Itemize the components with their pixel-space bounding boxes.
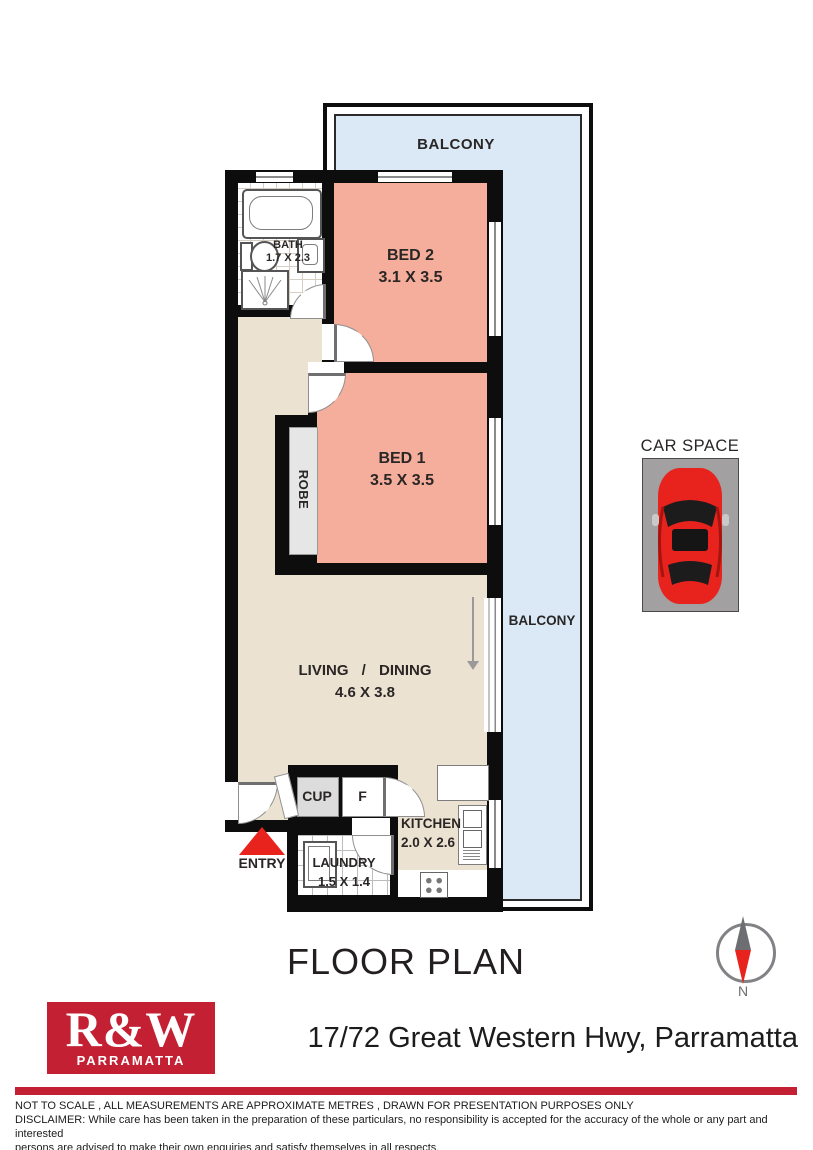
bed2-door-gap — [322, 324, 334, 360]
footer-divider-bar — [15, 1087, 797, 1095]
entry-label: ENTRY — [227, 855, 297, 871]
disclaimer-line2: persons are advised to make their own en… — [15, 1141, 805, 1150]
bed1-door-gap — [308, 362, 344, 373]
bathtub — [242, 189, 322, 239]
entry-arrow-icon — [239, 827, 285, 855]
bed2-side-window — [489, 222, 501, 336]
bed1-side-window — [489, 418, 501, 525]
kitchen-counter — [437, 765, 489, 801]
disclaimer-line1: DISCLAIMER: While care has been taken in… — [15, 1113, 805, 1141]
bath-dims: 1.7 X 2.3 — [252, 252, 324, 265]
compass-needle-south — [735, 950, 751, 984]
car-space-label: CAR SPACE — [638, 437, 742, 456]
page-title: FLOOR PLAN — [156, 941, 656, 983]
entry-door-gap — [225, 782, 238, 820]
bath-name: BATH — [252, 239, 324, 252]
living-name: LIVING / DINING — [255, 660, 475, 682]
car-space-area — [642, 458, 739, 612]
kitchen-name: KITCHEN — [401, 814, 485, 833]
bed2-name: BED 2 — [334, 245, 487, 267]
bathroom-window — [256, 172, 293, 182]
kitchen-window — [489, 800, 501, 868]
balcony-sliding-door — [484, 598, 501, 732]
shower-spray-icon — [243, 272, 287, 308]
laundry-dims: 1.5 X 1.4 — [298, 872, 390, 891]
balcony-right-label: BALCONY — [503, 613, 581, 629]
laundry-name: LAUNDRY — [298, 853, 390, 872]
bed2-dims: 3.1 X 3.5 — [334, 267, 487, 289]
living-label: LIVING / DINING 4.6 X 3.8 — [255, 660, 475, 704]
balcony-top-label: BALCONY — [356, 136, 556, 153]
kitchen-label: KITCHEN 2.0 X 2.6 — [398, 814, 485, 852]
stove-cooktop — [420, 872, 448, 898]
compass-north-label: N — [728, 983, 758, 999]
laundry-door-gap — [352, 818, 390, 835]
not-to-scale-note: NOT TO SCALE , ALL MEASUREMENTS ARE APPR… — [15, 1099, 805, 1113]
kitchen-dims: 2.0 X 2.6 — [401, 833, 485, 852]
hallway-floor-upper — [238, 317, 322, 362]
floor-plan-page: BALCONY BALCONY BATH 1.7 X 2.3 BED 2 3.1… — [0, 0, 813, 1150]
bed2-top-window — [378, 172, 452, 182]
fridge-label: F — [342, 788, 383, 804]
balcony-access-arrow-line — [472, 597, 474, 663]
bed2-label: BED 2 3.1 X 3.5 — [334, 245, 487, 289]
property-address: 17/72 Great Western Hwy, Parramatta — [228, 1022, 798, 1055]
compass-needle-north — [735, 916, 751, 950]
cupboard-label: CUP — [297, 788, 337, 804]
bed1-dims: 3.5 X 3.5 — [317, 470, 487, 492]
robe-label: ROBE — [295, 462, 310, 517]
hallway-floor-mid — [238, 362, 308, 415]
bath-label: BATH 1.7 X 2.3 — [252, 239, 324, 264]
bed1-label: BED 1 3.5 X 3.5 — [317, 448, 487, 492]
laundry-label: LAUNDRY 1.5 X 1.4 — [298, 853, 390, 891]
bed1-name: BED 1 — [317, 448, 487, 470]
agency-logo-brand: R&W — [47, 1004, 215, 1054]
hallway-floor-left — [238, 415, 275, 575]
fine-print: NOT TO SCALE , ALL MEASUREMENTS ARE APPR… — [15, 1099, 805, 1150]
shower — [241, 270, 289, 310]
car-icon — [643, 459, 738, 611]
agency-logo: R&W PARRAMATTA — [47, 1002, 215, 1074]
living-dims: 4.6 X 3.8 — [255, 682, 475, 704]
bathtub-inner — [249, 196, 313, 230]
